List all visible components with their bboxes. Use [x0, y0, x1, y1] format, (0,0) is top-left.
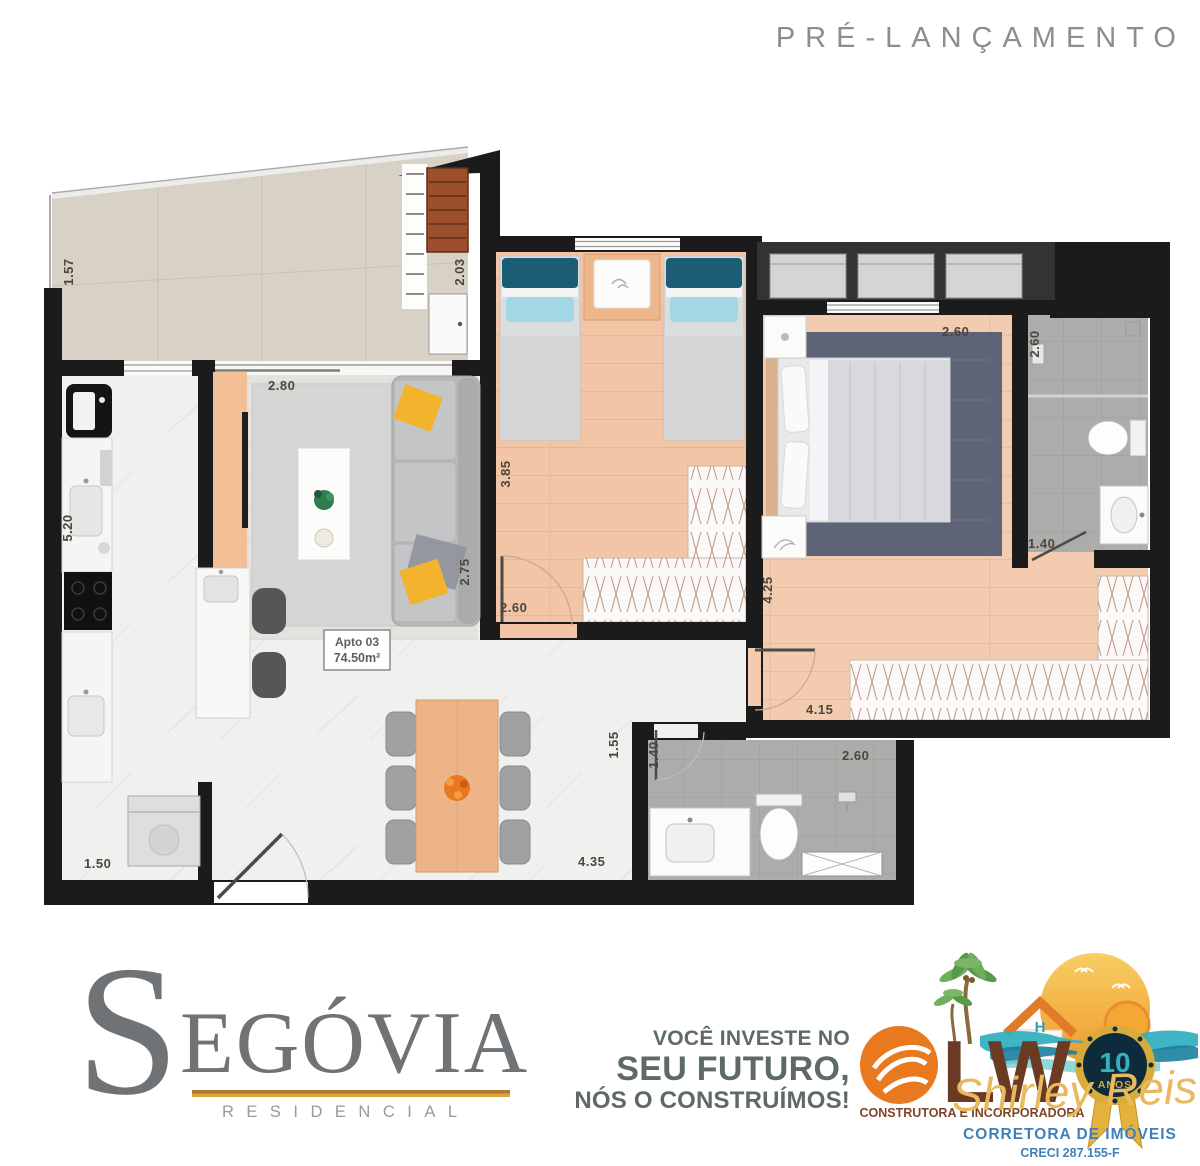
double-bed [766, 330, 950, 528]
segovia-underline [192, 1090, 510, 1097]
kitchen-island [196, 568, 250, 718]
segovia-logo: S EGÓVIA RESIDENCIAL [76, 962, 556, 1142]
coffee-table [298, 448, 350, 560]
dim-dining-width: 4.35 [578, 854, 605, 869]
unit-name: Apto 03 [335, 635, 379, 649]
dim-kitchen-length: 5.20 [60, 514, 75, 541]
broker-title: CORRETORA DE IMÓVEIS [963, 1125, 1177, 1143]
dim-bedroom2-length: 3.85 [498, 460, 513, 487]
segovia-subtitle: RESIDENCIAL [222, 1103, 470, 1122]
gourmet-counter [429, 294, 467, 354]
kitchen-lower-counter [62, 632, 112, 782]
dim-living-depth: 2.75 [457, 558, 472, 585]
unit-label: Apto 03 74.50m² [324, 630, 390, 670]
dim-master-width: 2.60 [942, 324, 969, 339]
kitchen-pass-through [124, 361, 192, 375]
stove [64, 572, 112, 630]
bath-window-sill [802, 852, 882, 876]
segovia-initial: S [76, 938, 179, 1124]
master-window [827, 302, 939, 313]
dim-living-width: 2.80 [268, 378, 295, 393]
dim-bath1-width: 1.40 [1028, 536, 1055, 551]
floor-plan: Apto 03 74.50m² 1.57 2.03 2.80 5.20 2.75… [0, 0, 1200, 930]
master-bedroom [762, 316, 1002, 558]
nightstand-master-bottom [762, 516, 806, 558]
barbecue-grill [427, 168, 468, 252]
lwo-globe-icon [860, 1026, 938, 1104]
tv-panel [213, 372, 248, 568]
sink-social [650, 808, 750, 876]
toilet-suite [1088, 420, 1146, 456]
twin-bed-left [500, 256, 580, 440]
sofa [392, 376, 480, 626]
broker-creci: CRECI 287.155-F [1020, 1146, 1120, 1160]
broker-script-name: Shirley Reis [951, 1061, 1198, 1122]
dining-area [386, 700, 530, 872]
service-area [128, 796, 200, 866]
kitchen-counter-sink [62, 438, 112, 572]
balcony-sliding-door [215, 361, 452, 375]
unit-area: 74.50m² [334, 651, 381, 665]
slogan: VOCÊ INVESTE NO SEU FUTURO, NÓS O CONSTR… [560, 1026, 850, 1115]
segovia-name: EGÓVIA [180, 1000, 529, 1088]
refrigerator [66, 384, 112, 438]
flyer-page: PRÉ-LANÇAMENTO [0, 0, 1200, 1166]
twin-bed-right [664, 256, 744, 440]
slogan-line3: NÓS O CONSTRUÍMOS! [560, 1087, 850, 1115]
dim-hall-width: 1.55 [606, 731, 621, 758]
washing-machine [128, 796, 200, 866]
dim-grill-width: 2.03 [452, 258, 467, 285]
nightstand-bedroom2 [584, 254, 660, 320]
slogan-line1: VOCÊ INVESTE NO [560, 1026, 850, 1051]
sink-suite [1100, 486, 1148, 544]
dim-service-width: 1.50 [84, 856, 111, 871]
dim-bath2-width: 1.40 [646, 741, 661, 768]
dim-bath1-length: 2.60 [1027, 330, 1042, 357]
dim-balcony-depth: 1.57 [61, 258, 76, 285]
nightstand-master-top [764, 316, 806, 358]
dim-master-closet-length: 4.15 [806, 702, 833, 717]
dim-master-length: 4.25 [760, 576, 775, 603]
slogan-line2: SEU FUTURO, [560, 1051, 850, 1087]
lwo-broker-logo: H LW [850, 950, 1200, 1166]
ac-units [757, 242, 1055, 300]
dim-bath2-length: 2.60 [842, 748, 869, 763]
dining-table [416, 700, 498, 872]
dim-bedroom2-width: 2.60 [500, 600, 527, 615]
bedroom2-window [575, 238, 680, 250]
